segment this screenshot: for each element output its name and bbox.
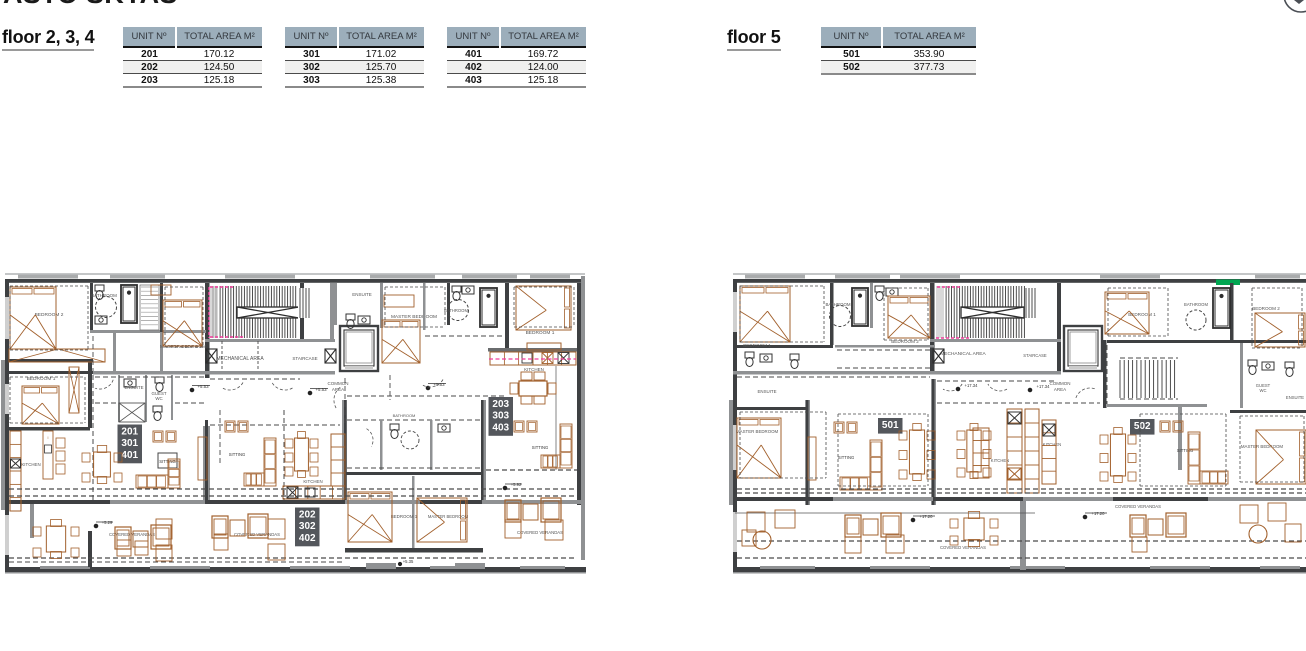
svg-text:ENSUITE: ENSUITE [1286, 395, 1304, 400]
svg-text:BEDROOM 1: BEDROOM 1 [743, 343, 771, 348]
svg-text:+17.20: +17.20 [920, 514, 934, 519]
svg-text:202: 202 [299, 510, 316, 521]
svg-text:COVERED VERANDAS: COVERED VERANDAS [1115, 504, 1161, 509]
svg-text:BEDROOM 2: BEDROOM 2 [1252, 306, 1280, 311]
svg-text:301: 301 [121, 438, 138, 449]
svg-text:SITTING: SITTING [838, 455, 855, 460]
svg-text:WC: WC [155, 396, 162, 401]
svg-text:302: 302 [299, 521, 316, 532]
svg-text:ENSUITE: ENSUITE [757, 389, 776, 394]
svg-text:201: 201 [121, 427, 138, 438]
svg-text:AREA: AREA [1054, 387, 1066, 392]
svg-text:COVERED VERANDAS: COVERED VERANDAS [517, 530, 563, 535]
svg-text:COMMON: COMMON [1050, 381, 1071, 386]
svg-text:+5.53: +5.53 [197, 384, 209, 389]
svg-text:KITCHEN: KITCHEN [991, 458, 1009, 463]
svg-text:+5.29: +5.29 [102, 520, 113, 525]
svg-text:SITTING: SITTING [532, 445, 549, 450]
svg-text:+5.35: +5.35 [403, 559, 414, 564]
svg-text:STAIRCASE: STAIRCASE [1023, 353, 1047, 358]
svg-text:AREA: AREA [332, 387, 344, 392]
svg-text:KITCHEN: KITCHEN [524, 367, 544, 372]
svg-text:MASTER BEDROOM: MASTER BEDROOM [736, 429, 779, 434]
svg-text:+5.53: +5.53 [315, 387, 327, 392]
svg-text:403: 403 [492, 422, 509, 433]
svg-text:BATHROOM: BATHROOM [393, 413, 416, 418]
svg-text:BATHROOM: BATHROOM [91, 293, 117, 298]
svg-text:402: 402 [299, 533, 316, 544]
svg-text:WC: WC [1260, 388, 1267, 393]
svg-text:BEDROOM 1: BEDROOM 1 [526, 330, 555, 336]
svg-text:ENSUITE: ENSUITE [352, 292, 372, 297]
svg-text:BEDROOM 1: BEDROOM 1 [391, 514, 418, 519]
svg-text:MASTER BEDROOM: MASTER BEDROOM [1241, 444, 1284, 449]
svg-text:SITTING: SITTING [229, 452, 246, 457]
svg-text:I: I [48, 436, 49, 440]
svg-text:203: 203 [492, 399, 509, 410]
svg-text:SITTING: SITTING [159, 459, 176, 464]
svg-text:502: 502 [1134, 421, 1151, 432]
svg-text:KITCHEN: KITCHEN [1043, 442, 1061, 447]
svg-text:BEDROOM 2: BEDROOM 2 [35, 312, 64, 318]
svg-text:MECHANICAL AREA: MECHANICAL AREA [940, 351, 986, 357]
svg-text:KITCHEN: KITCHEN [303, 479, 322, 484]
svg-text:501: 501 [882, 420, 899, 431]
svg-text:+5.92: +5.92 [511, 482, 522, 487]
svg-text:+17.34: +17.34 [1037, 384, 1051, 389]
svg-text:401: 401 [121, 450, 138, 461]
svg-text:MASTER BEDROOM: MASTER BEDROOM [428, 514, 469, 519]
svg-text:+17.34: +17.34 [965, 383, 979, 388]
svg-text:303: 303 [492, 411, 509, 422]
svg-text:STAIRCASE: STAIRCASE [292, 356, 317, 361]
svg-text:MECHANICAL AREA: MECHANICAL AREA [216, 356, 264, 362]
svg-text:BATHROOM: BATHROOM [825, 302, 850, 307]
svg-text:KITCHEN: KITCHEN [21, 462, 40, 467]
svg-text:+17.20: +17.20 [1092, 511, 1106, 516]
svg-text:BATHROOM: BATHROOM [1184, 302, 1208, 307]
svg-text:COVERED VERANDAS: COVERED VERANDAS [940, 545, 986, 550]
svg-text:MASTER BEDROOM: MASTER BEDROOM [391, 314, 437, 320]
